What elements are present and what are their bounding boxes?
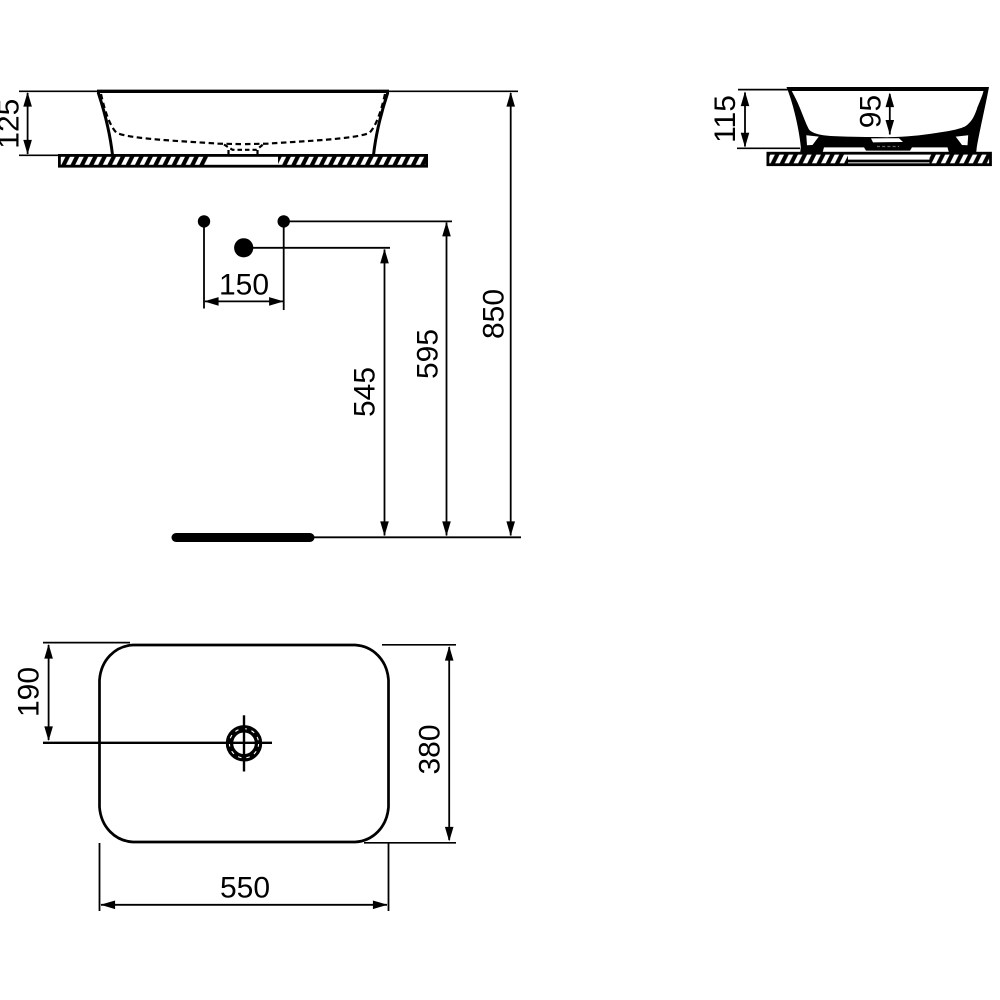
svg-text:125: 125 bbox=[0, 99, 25, 149]
svg-text:545: 545 bbox=[349, 367, 382, 417]
svg-text:115: 115 bbox=[709, 95, 742, 143]
svg-text:595: 595 bbox=[412, 329, 445, 379]
svg-text:850: 850 bbox=[478, 289, 511, 339]
svg-text:380: 380 bbox=[414, 724, 447, 774]
svg-text:550: 550 bbox=[220, 872, 270, 905]
svg-text:190: 190 bbox=[13, 667, 46, 717]
svg-text:95: 95 bbox=[855, 95, 888, 128]
svg-text:150: 150 bbox=[219, 269, 269, 302]
